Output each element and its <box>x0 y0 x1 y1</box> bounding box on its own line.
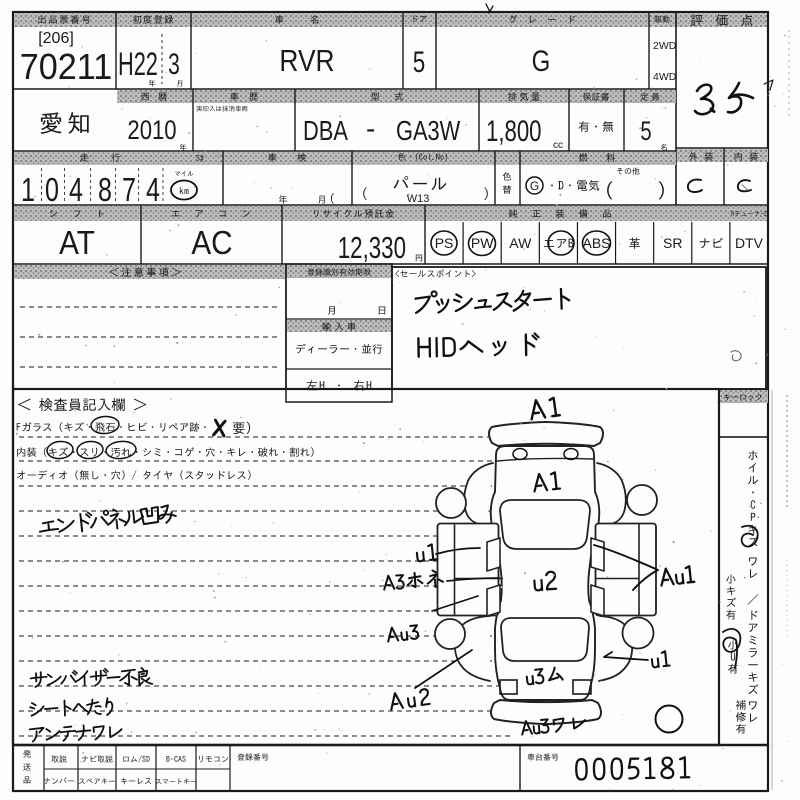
svg-text:4: 4 <box>146 172 160 209</box>
svg-text:1: 1 <box>21 172 35 209</box>
svg-text:PS: PS <box>435 235 454 251</box>
svg-text:G: G <box>530 179 539 193</box>
svg-text:DBA: DBA <box>303 115 348 146</box>
svg-text:-: - <box>366 113 375 144</box>
svg-text:5: 5 <box>640 116 651 147</box>
svg-text:PW: PW <box>471 235 494 251</box>
svg-text:H22: H22 <box>118 46 158 82</box>
svg-text:1,800: 1,800 <box>486 114 542 148</box>
svg-text:AC: AC <box>191 225 232 262</box>
svg-text:4WD: 4WD <box>653 71 677 83</box>
svg-text:7: 7 <box>122 172 136 209</box>
svg-text:[206]: [206] <box>38 30 74 47</box>
svg-text:2WD: 2WD <box>653 40 677 52</box>
svg-text:AT: AT <box>59 225 95 262</box>
svg-text:AW: AW <box>509 235 532 251</box>
svg-text:GA3W: GA3W <box>396 115 461 146</box>
svg-text:RVR: RVR <box>279 44 334 78</box>
svg-text:SR: SR <box>663 235 682 251</box>
svg-text:ABS: ABS <box>582 235 610 251</box>
svg-text:W13: W13 <box>407 193 430 205</box>
svg-text:5: 5 <box>413 45 426 79</box>
svg-text:12,330: 12,330 <box>338 230 406 264</box>
svg-text:70211: 70211 <box>20 47 113 87</box>
svg-text:3: 3 <box>168 49 180 81</box>
svg-text:2010: 2010 <box>127 116 176 146</box>
svg-text:cc: cc <box>553 140 563 151</box>
svg-text:DTV: DTV <box>735 235 764 251</box>
svg-text:4: 4 <box>69 172 83 209</box>
svg-text:0: 0 <box>45 172 59 209</box>
svg-text:8: 8 <box>98 172 112 209</box>
svg-text:G: G <box>532 43 551 77</box>
